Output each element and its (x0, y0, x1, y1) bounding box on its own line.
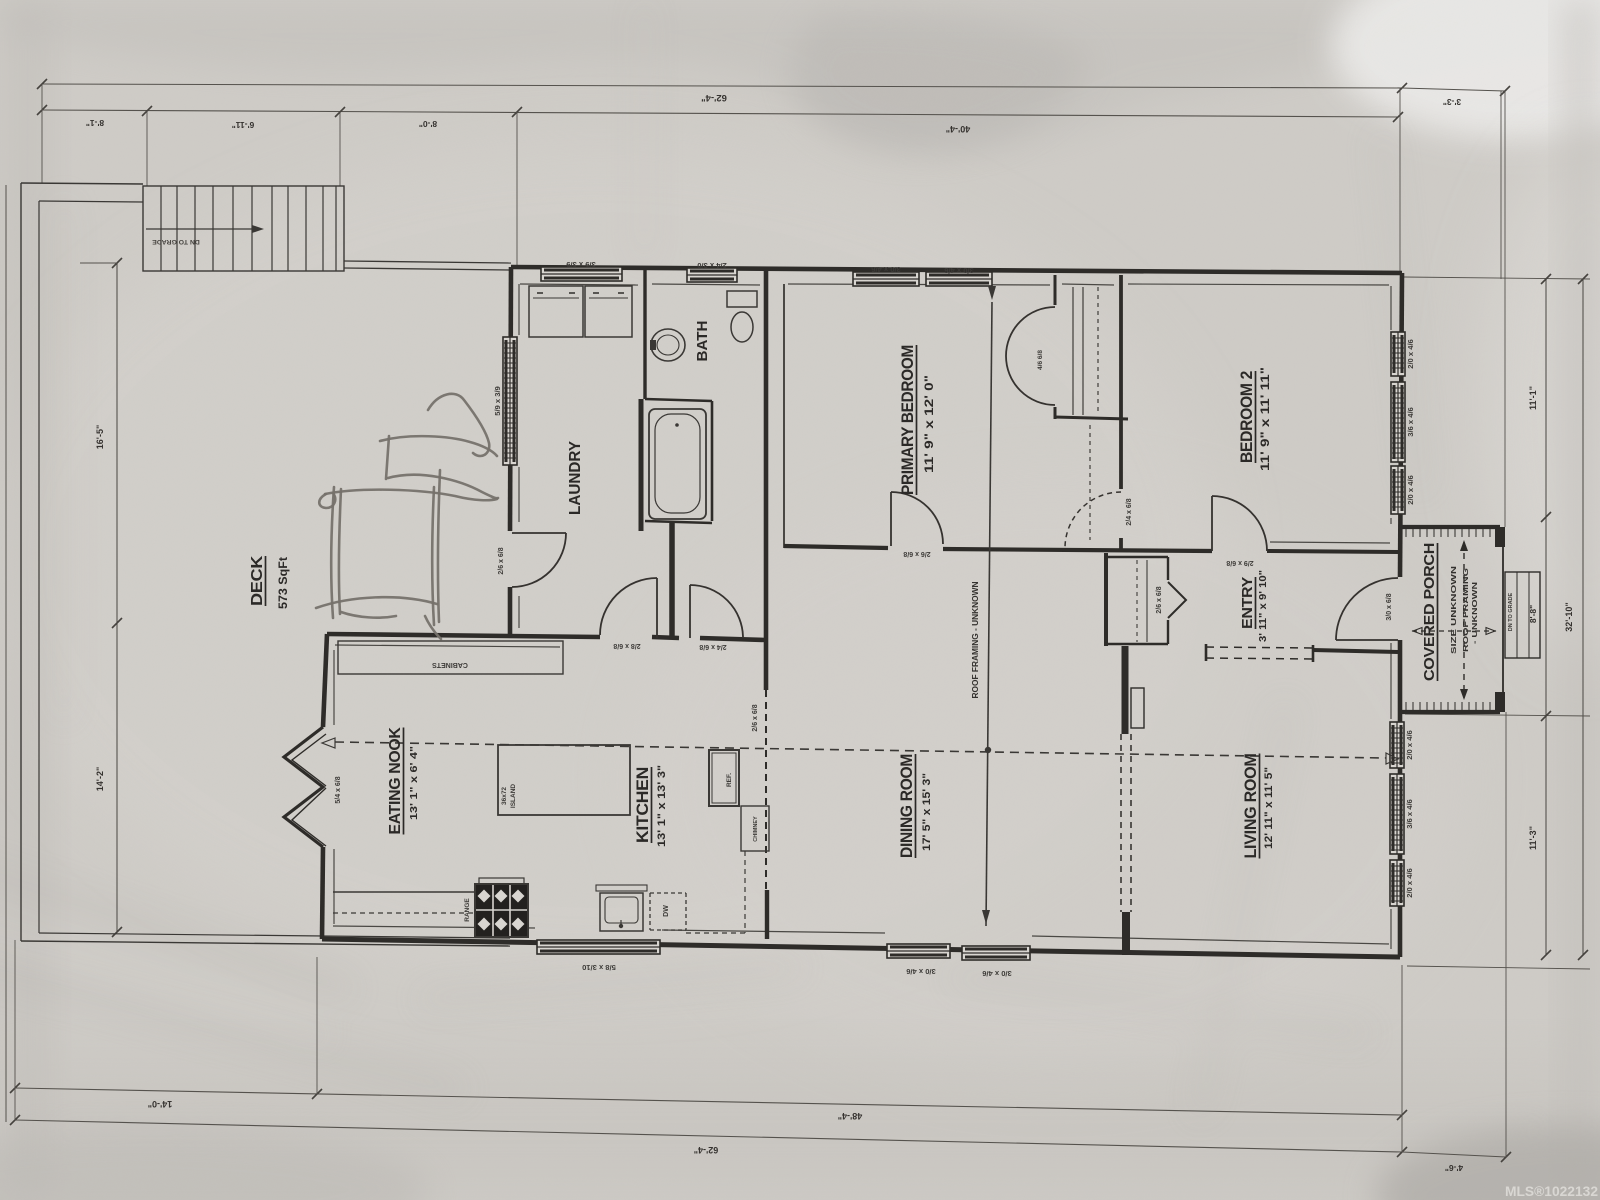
svg-text:3/0 x 4/6: 3/0 x 4/6 (906, 967, 936, 976)
svg-text:2/9 x 6/8: 2/9 x 6/8 (1226, 559, 1253, 566)
svg-text:2/0 x 4/6: 2/0 x 4/6 (1406, 475, 1415, 505)
svg-text:11'-1": 11'-1" (1528, 386, 1538, 410)
svg-text:3/0 x 4/6: 3/0 x 4/6 (871, 265, 901, 274)
svg-text:DINING ROOM: DINING ROOM (898, 754, 916, 858)
svg-text:5/8 x 3/10: 5/8 x 3/10 (582, 963, 616, 972)
svg-text:8'-1": 8'-1" (86, 118, 104, 128)
svg-text:2/0 x 4/6: 2/0 x 4/6 (1405, 730, 1414, 760)
svg-text:ROOF FRAMING - UNKNOWN: ROOF FRAMING - UNKNOWN (971, 581, 980, 698)
svg-text:3/6 x 4/6: 3/6 x 4/6 (1406, 407, 1415, 437)
svg-text:3' 11" x 9' 10": 3' 11" x 9' 10" (1257, 570, 1269, 642)
svg-text:ISLAND: ISLAND (510, 784, 517, 809)
svg-text:13' 1" x 13' 3": 13' 1" x 13' 3" (656, 765, 668, 847)
svg-text:6'-11": 6'-11" (232, 120, 255, 130)
svg-text:4'-6": 4'-6" (1445, 1163, 1463, 1173)
svg-text:DN TO GRADE: DN TO GRADE (152, 238, 200, 245)
svg-text:48'-4": 48'-4" (838, 1111, 862, 1121)
svg-text:3'-3": 3'-3" (1443, 97, 1461, 107)
svg-text:RANGE: RANGE (464, 898, 471, 922)
svg-text:PRIMARY BEDROOM: PRIMARY BEDROOM (899, 345, 917, 495)
svg-text:BEDROOM 2: BEDROOM 2 (1238, 371, 1256, 463)
svg-text:13' 1" x 6' 4": 13' 1" x 6' 4" (408, 746, 420, 820)
svg-text:REF.: REF. (726, 773, 733, 787)
svg-text:4/6 6/8: 4/6 6/8 (1037, 350, 1044, 370)
svg-text:KITCHEN: KITCHEN (634, 767, 652, 843)
svg-text:CHIMNEY: CHIMNEY (753, 816, 759, 842)
svg-text:3/9 x 3/9: 3/9 x 3/9 (566, 260, 596, 269)
svg-text:5/4 x 6/8: 5/4 x 6/8 (335, 776, 342, 803)
svg-text:11' 9" x 12' 0": 11' 9" x 12' 0" (924, 375, 936, 473)
svg-text:2/4 x 6/8: 2/4 x 6/8 (699, 643, 726, 650)
svg-text:14'-0": 14'-0" (148, 1099, 172, 1109)
svg-text:5/9 x 3/9: 5/9 x 3/9 (493, 386, 502, 416)
svg-text:2/6 x 6/8: 2/6 x 6/8 (752, 704, 759, 731)
svg-text:LAUNDRY: LAUNDRY (567, 440, 584, 515)
svg-text:EATING NOOK: EATING NOOK (387, 726, 404, 834)
svg-text:40'-4": 40'-4" (946, 124, 970, 134)
svg-text:11'-3": 11'-3" (1528, 826, 1538, 850)
svg-text:16'-5": 16'-5" (95, 425, 105, 449)
svg-text:2/0 x 4/6: 2/0 x 4/6 (1405, 868, 1414, 898)
svg-text:BATH: BATH (695, 321, 711, 362)
svg-text:2/6 x 6/8: 2/6 x 6/8 (1156, 586, 1163, 613)
svg-text:62'-4": 62'-4" (701, 92, 727, 103)
svg-text:COVERED PORCH: COVERED PORCH (1421, 543, 1438, 681)
svg-text:32'-10": 32'-10" (1564, 602, 1574, 631)
svg-text:LIVING ROOM: LIVING ROOM (1242, 754, 1260, 859)
svg-text:DECK: DECK (249, 555, 266, 606)
svg-text:SIZE UNKNOWN: SIZE UNKNOWN (1451, 566, 1458, 654)
svg-text:11' 9" x 11' 11": 11' 9" x 11' 11" (1260, 367, 1272, 471)
svg-text:3/6 x 4/6: 3/6 x 4/6 (1405, 799, 1414, 829)
svg-text:17' 5" x 15' 3": 17' 5" x 15' 3" (921, 773, 933, 851)
svg-text:2/6 x 6/8: 2/6 x 6/8 (903, 550, 930, 557)
svg-text:2/6 x 6/8: 2/6 x 6/8 (498, 547, 505, 574)
svg-text:2/8 x 6/8: 2/8 x 6/8 (613, 642, 640, 649)
svg-text:8'-0": 8'-0" (419, 119, 437, 129)
svg-text:MLS®1022132: MLS®1022132 (1505, 1184, 1598, 1199)
svg-text:ENTRY: ENTRY (1240, 576, 1256, 629)
svg-text:2/0 x 4/6: 2/0 x 4/6 (1406, 339, 1415, 369)
svg-text:- UNKNOWN: - UNKNOWN (1472, 582, 1479, 644)
svg-text:2/4 x 3/0: 2/4 x 3/0 (697, 261, 727, 270)
svg-text:36x72: 36x72 (501, 787, 508, 805)
svg-text:12' 11" x 11' 5": 12' 11" x 11' 5" (1263, 767, 1275, 849)
svg-text:62'-4": 62'-4" (694, 1145, 718, 1155)
svg-text:3/0 x 6/8: 3/0 x 6/8 (1386, 593, 1393, 620)
svg-text:DW: DW (663, 905, 670, 917)
svg-text:3/0 x 4/6: 3/0 x 4/6 (982, 969, 1012, 978)
svg-text:CABINETS: CABINETS (432, 661, 468, 668)
svg-text:573 SqFt: 573 SqFt (276, 557, 290, 609)
svg-text:ROOF FRAMING: ROOF FRAMING (1463, 567, 1470, 652)
svg-text:DN TO GRADE: DN TO GRADE (1508, 592, 1514, 631)
svg-text:2/4 x 6/8: 2/4 x 6/8 (1126, 498, 1133, 525)
svg-text:14'-2": 14'-2" (95, 767, 105, 791)
svg-text:3/0 x 4/6: 3/0 x 4/6 (944, 266, 974, 275)
